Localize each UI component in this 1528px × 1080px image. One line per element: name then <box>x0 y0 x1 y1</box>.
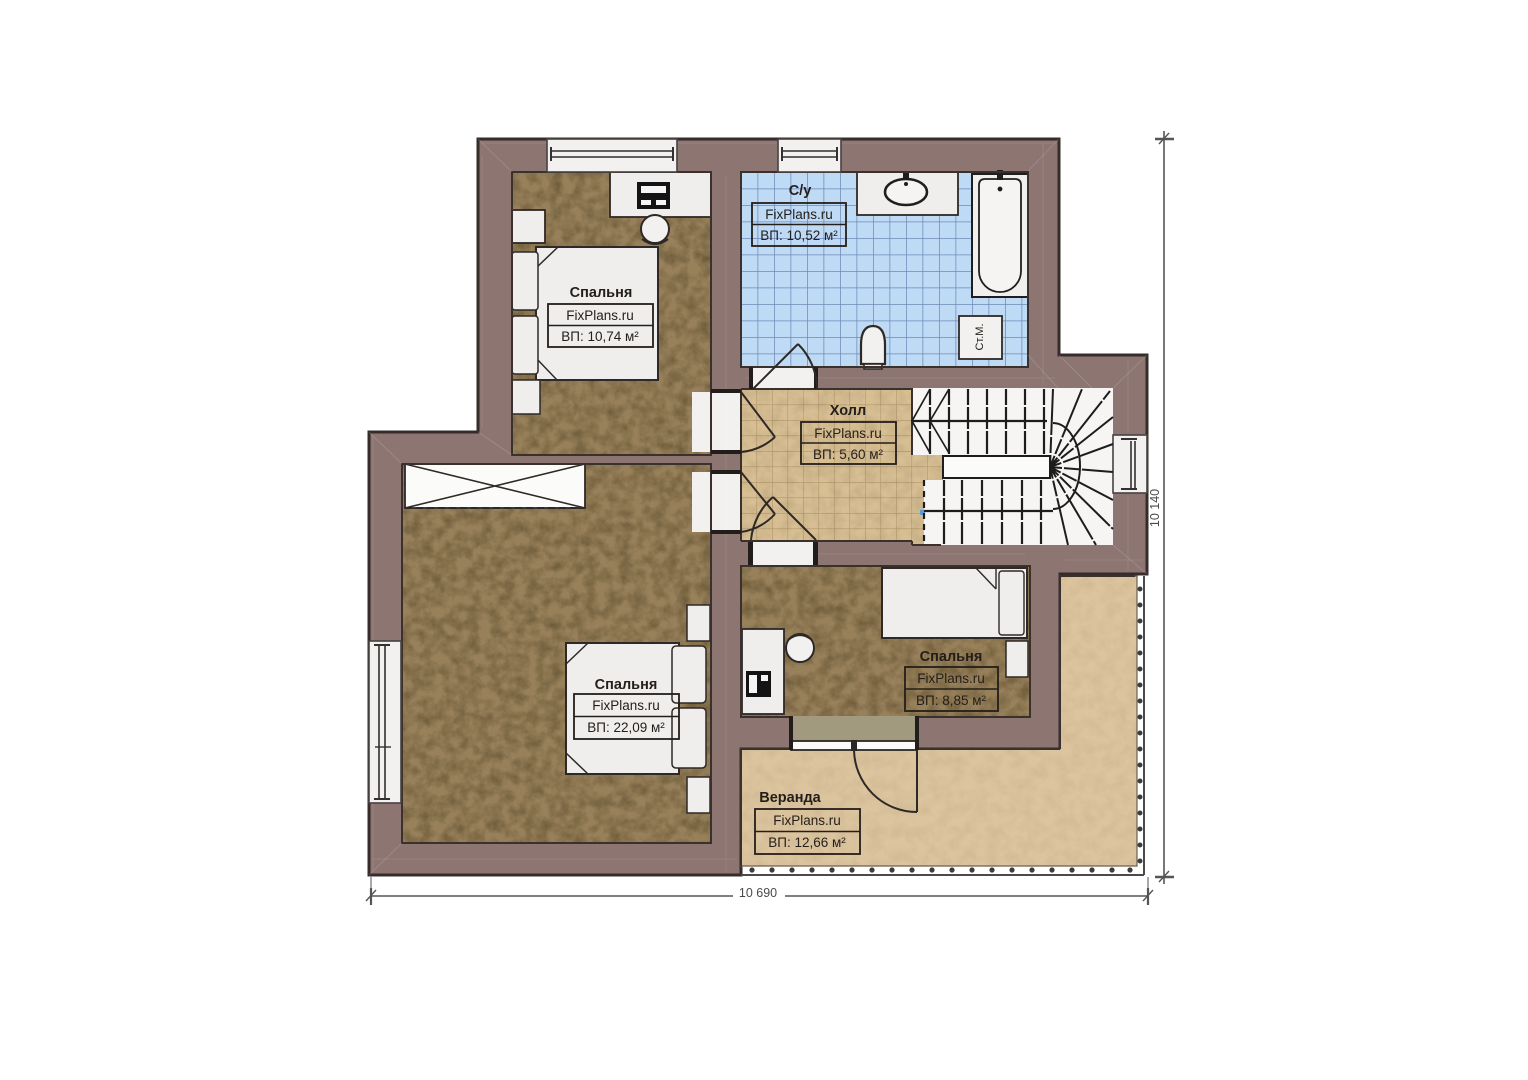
svg-text:ВП: 22,09 м²: ВП: 22,09 м² <box>587 720 665 735</box>
svg-text:FixPlans.ru: FixPlans.ru <box>773 813 841 828</box>
svg-text:ВП: 8,85 м²: ВП: 8,85 м² <box>916 693 987 708</box>
svg-text:ВП: 10,74 м²: ВП: 10,74 м² <box>561 329 639 344</box>
svg-text:ВП: 12,66 м²: ВП: 12,66 м² <box>768 835 846 850</box>
svg-text:FixPlans.ru: FixPlans.ru <box>765 207 833 222</box>
svg-text:С/у: С/у <box>789 183 812 199</box>
svg-text:Холл: Холл <box>830 403 866 419</box>
svg-text:Веранда: Веранда <box>759 790 821 806</box>
svg-text:FixPlans.ru: FixPlans.ru <box>566 308 634 323</box>
svg-text:FixPlans.ru: FixPlans.ru <box>814 426 882 441</box>
svg-text:FixPlans.ru: FixPlans.ru <box>917 671 985 686</box>
svg-text:ВП: 10,52 м²: ВП: 10,52 м² <box>760 228 838 243</box>
svg-text:Спальня: Спальня <box>595 677 658 693</box>
svg-text:10 140: 10 140 <box>1148 489 1162 527</box>
svg-text:Спальня: Спальня <box>570 285 633 301</box>
svg-text:ВП: 5,60 м²: ВП: 5,60 м² <box>813 447 884 462</box>
svg-text:Спальня: Спальня <box>920 649 983 665</box>
svg-text:FixPlans.ru: FixPlans.ru <box>592 698 660 713</box>
svg-text:Ст.М.: Ст.М. <box>974 323 986 350</box>
svg-text:10 690: 10 690 <box>739 886 777 900</box>
